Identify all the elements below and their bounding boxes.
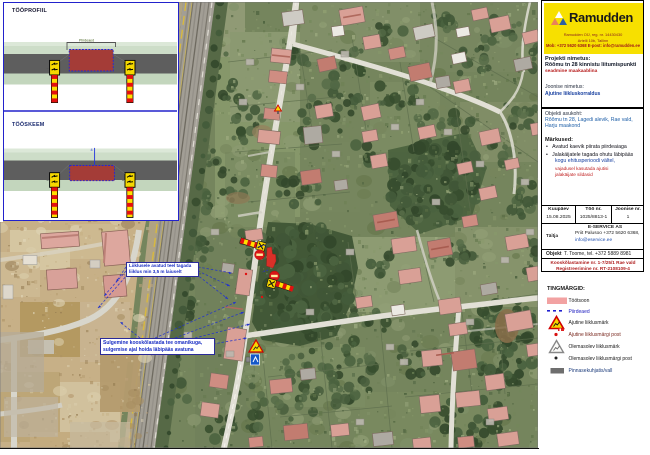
svg-text:Piirdeaed: Piirdeaed: [79, 39, 94, 43]
svg-text:4: 4: [91, 148, 93, 152]
